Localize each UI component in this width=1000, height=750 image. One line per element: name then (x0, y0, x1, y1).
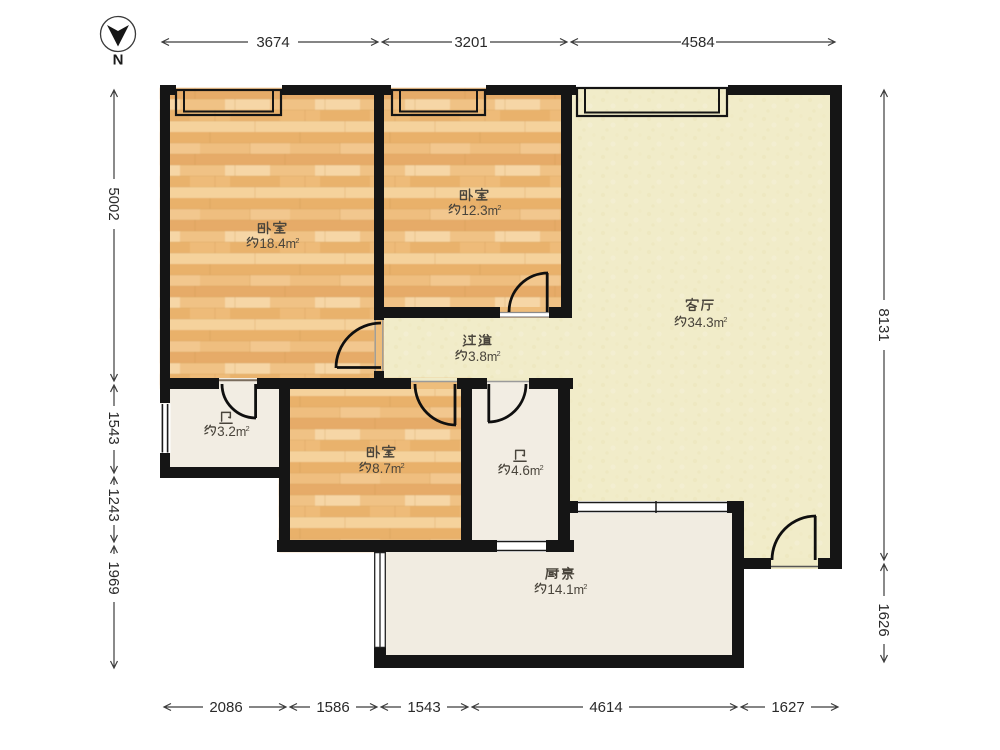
svg-text:1626: 1626 (875, 603, 892, 636)
svg-text:1586: 1586 (316, 699, 349, 716)
svg-text:4584: 4584 (681, 34, 714, 51)
svg-text:3.2: 3.2 (217, 424, 236, 439)
svg-text:3201: 3201 (454, 34, 487, 51)
svg-text:4614: 4614 (589, 699, 622, 716)
svg-text:12.3: 12.3 (461, 203, 487, 218)
svg-text:18.4: 18.4 (259, 236, 286, 251)
svg-text:1627: 1627 (771, 699, 804, 716)
svg-text:1543: 1543 (407, 699, 440, 716)
svg-text:1543: 1543 (105, 411, 122, 444)
svg-text:1243: 1243 (105, 488, 122, 521)
svg-text:2086: 2086 (209, 699, 242, 716)
svg-text:14.1: 14.1 (547, 582, 573, 597)
svg-text:2: 2 (401, 461, 405, 470)
svg-text:N: N (113, 52, 124, 69)
svg-text:8131: 8131 (875, 308, 892, 341)
svg-text:2: 2 (540, 463, 544, 472)
svg-text:2: 2 (497, 203, 501, 212)
svg-text:2: 2 (497, 349, 501, 358)
svg-text:5002: 5002 (105, 187, 122, 220)
svg-text:1969: 1969 (105, 561, 122, 594)
svg-text:4.6: 4.6 (511, 463, 530, 478)
svg-text:3674: 3674 (256, 34, 289, 51)
svg-text:2: 2 (723, 315, 727, 324)
svg-text:2: 2 (583, 582, 587, 591)
svg-text:2: 2 (246, 424, 250, 433)
svg-text:8.7: 8.7 (372, 461, 391, 476)
svg-text:2: 2 (295, 236, 299, 245)
svg-text:34.3: 34.3 (687, 315, 713, 330)
svg-text:3.8: 3.8 (468, 349, 487, 364)
